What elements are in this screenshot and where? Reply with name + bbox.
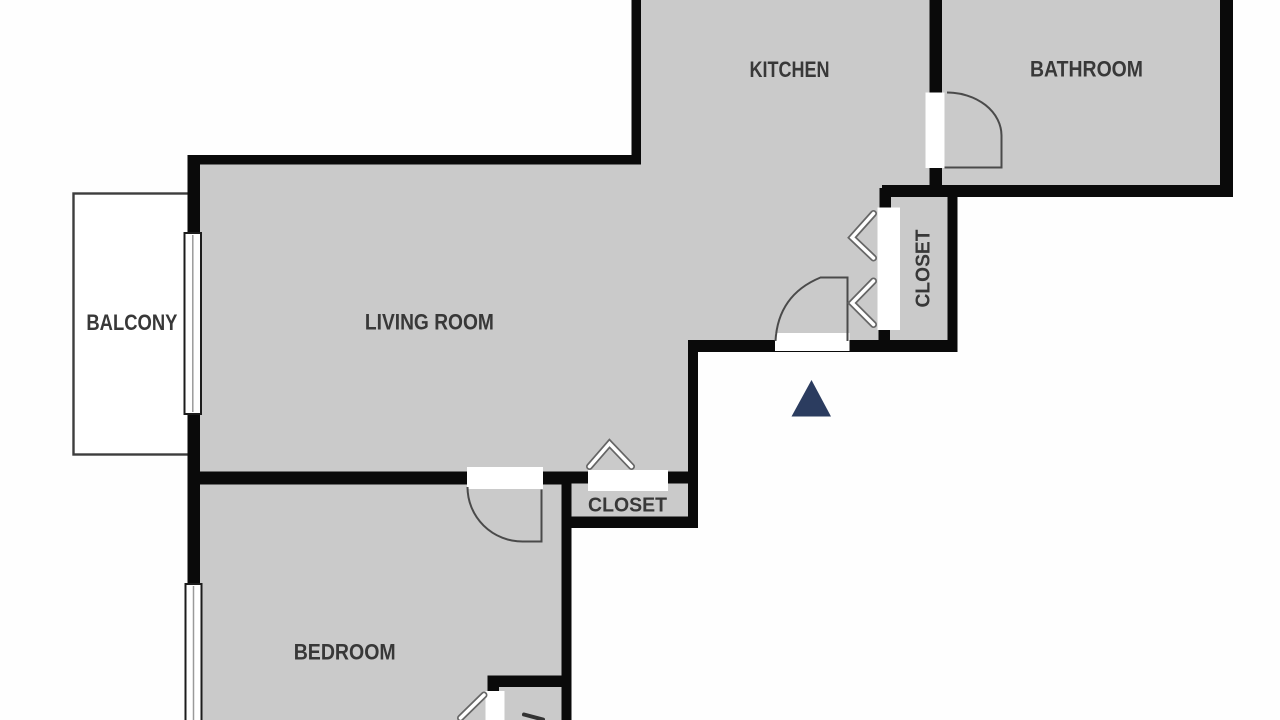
svg-text:CLOSET: CLOSET <box>588 495 667 517</box>
svg-text:LIVING ROOM: LIVING ROOM <box>365 310 494 335</box>
svg-text:BALCONY: BALCONY <box>86 310 177 335</box>
svg-text:CLOSET: CLOSET <box>913 230 935 308</box>
svg-text:BEDROOM: BEDROOM <box>294 640 396 665</box>
svg-text:BATHROOM: BATHROOM <box>1030 57 1143 82</box>
svg-text:KITCHEN: KITCHEN <box>750 57 830 82</box>
